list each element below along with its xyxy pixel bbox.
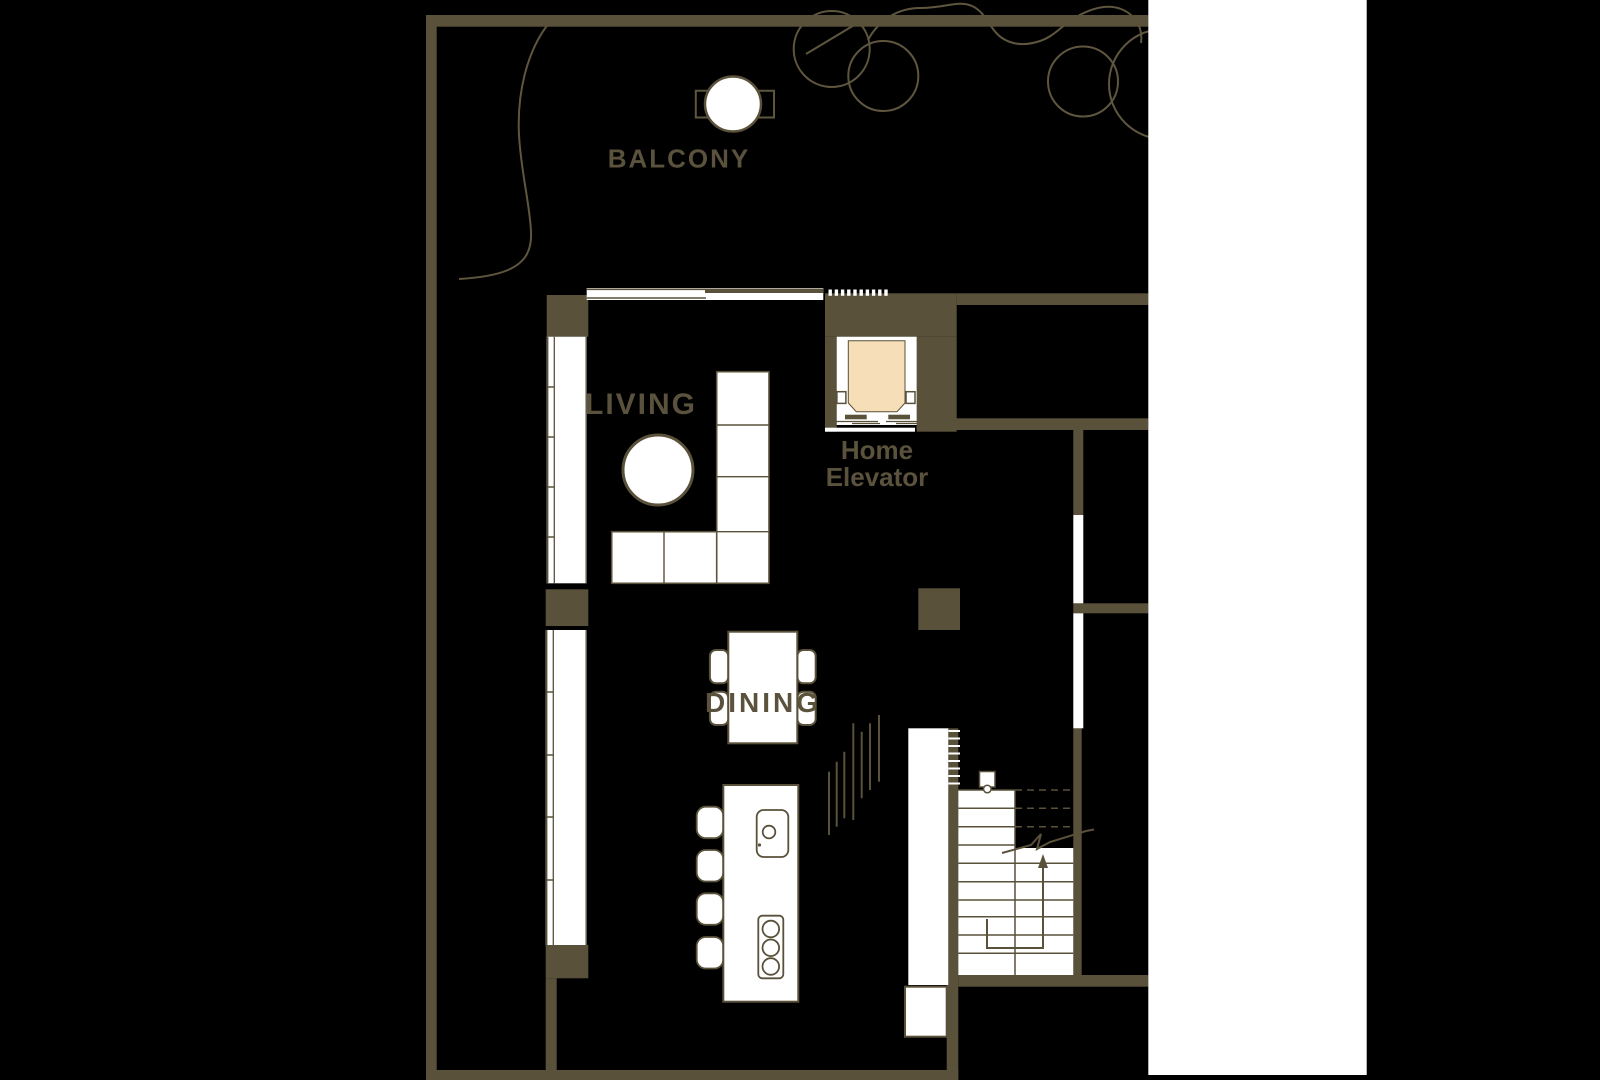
stove-burner — [763, 958, 780, 975]
staircase — [905, 728, 1094, 1036]
home-elevator — [825, 337, 928, 432]
window-bottom-pillar — [546, 945, 589, 978]
kitchen-stool — [697, 937, 724, 969]
stair-void — [908, 728, 948, 985]
page-margin-panel — [1148, 0, 1366, 1075]
dining-chair — [797, 650, 815, 683]
inner-wall-lower-left — [546, 978, 557, 1080]
lower-door-panel — [905, 987, 947, 1037]
stair-start-dot — [984, 785, 992, 793]
left-window-upper — [547, 337, 587, 584]
stove-burner — [763, 940, 780, 957]
balcony-furniture — [696, 77, 774, 132]
living-corner-pillar — [547, 295, 589, 337]
dining-chair — [710, 650, 728, 683]
living-round-table — [623, 435, 693, 505]
elevator-guide-left — [837, 392, 846, 404]
balcony-table — [705, 77, 761, 132]
sink-drain — [758, 843, 761, 846]
elevator-wall-right — [917, 337, 957, 432]
elevator-wall-left — [825, 337, 837, 432]
elevator-wall-top — [825, 293, 957, 336]
outer-wall-bottom — [426, 1070, 958, 1080]
column — [918, 588, 960, 630]
wall-below-stairs — [947, 985, 959, 1080]
home-elevator-label-line1: Home — [826, 437, 929, 464]
sink-faucet — [763, 826, 776, 839]
elevator-sill — [825, 428, 915, 432]
dining-label: DINING — [705, 687, 821, 719]
elevator-cab — [848, 341, 905, 412]
outer-wall-top — [426, 15, 1148, 27]
kitchen-stool — [697, 893, 724, 925]
left-window-lower — [546, 630, 587, 945]
stove-burner — [763, 921, 780, 938]
hatch-marks — [829, 715, 879, 835]
floorplan-canvas: BALCONY LIVING DINING Home Elevator — [0, 0, 1600, 1080]
floorplan-drawing — [0, 0, 1600, 1080]
stair-wall-left — [948, 728, 958, 986]
balcony-label: BALCONY — [608, 144, 751, 175]
door-openings — [1073, 515, 1083, 728]
right-wall-horizontal — [1073, 603, 1148, 613]
kitchen — [697, 785, 799, 1002]
kitchen-stool — [697, 807, 724, 839]
hall-wall — [917, 418, 1149, 430]
window-mid-pillar — [546, 589, 589, 626]
home-elevator-label: Home Elevator — [826, 437, 929, 491]
kitchen-stool — [697, 850, 724, 882]
outer-wall-left — [426, 15, 437, 1080]
elevator-guide-right — [906, 392, 915, 404]
home-elevator-label-line2: Elevator — [826, 464, 929, 491]
inner-wall-top-right — [957, 293, 1149, 305]
balcony-window — [587, 288, 824, 300]
stair-wall-bottom — [958, 975, 1148, 987]
stair-wall-right — [1073, 728, 1081, 976]
living-label: LIVING — [585, 388, 697, 422]
elevator-door-leaf — [845, 415, 867, 420]
sofa-vertical — [717, 372, 769, 584]
tree-outline-left — [459, 23, 549, 279]
right-wall-upper — [1073, 430, 1083, 515]
elevator-door-leaf — [888, 415, 910, 420]
